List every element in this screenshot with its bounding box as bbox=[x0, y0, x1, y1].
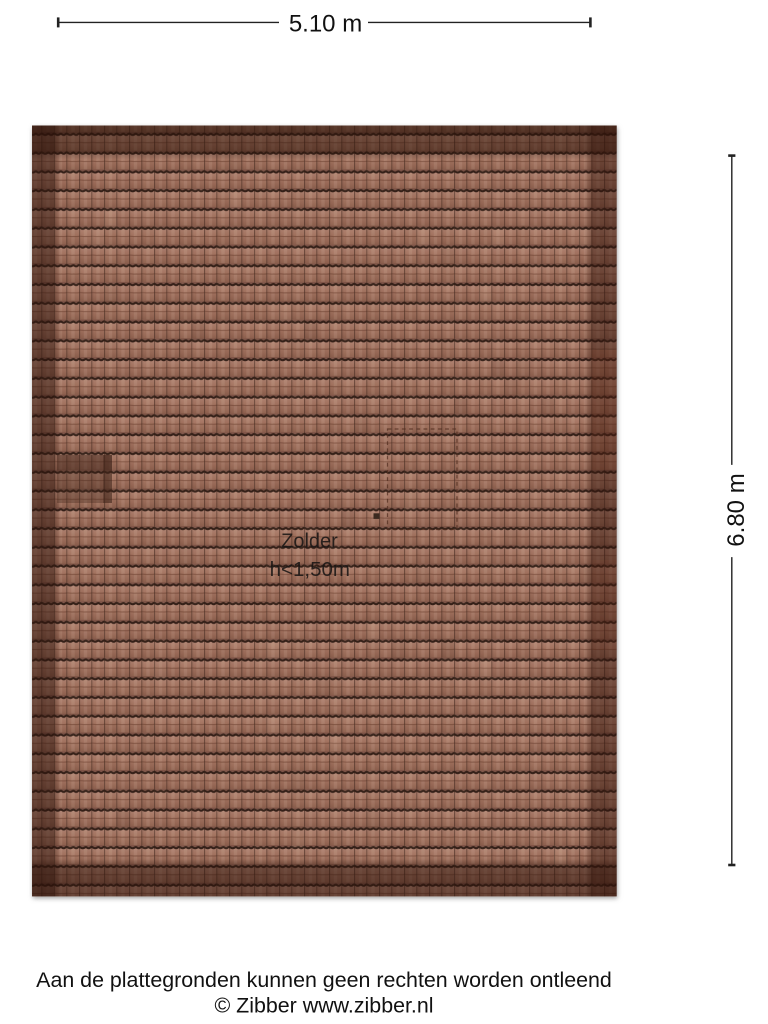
svg-text:5.10 m: 5.10 m bbox=[289, 11, 362, 38]
svg-text:6.80 m: 6.80 m bbox=[723, 473, 750, 546]
svg-text:h<1,50m: h<1,50m bbox=[270, 558, 350, 581]
svg-text:© Zibber www.zibber.nl: © Zibber www.zibber.nl bbox=[214, 993, 433, 1017]
svg-text:Aan de plattegronden kunnen ge: Aan de plattegronden kunnen geen rechten… bbox=[36, 968, 612, 992]
svg-text:Zolder: Zolder bbox=[281, 530, 338, 552]
